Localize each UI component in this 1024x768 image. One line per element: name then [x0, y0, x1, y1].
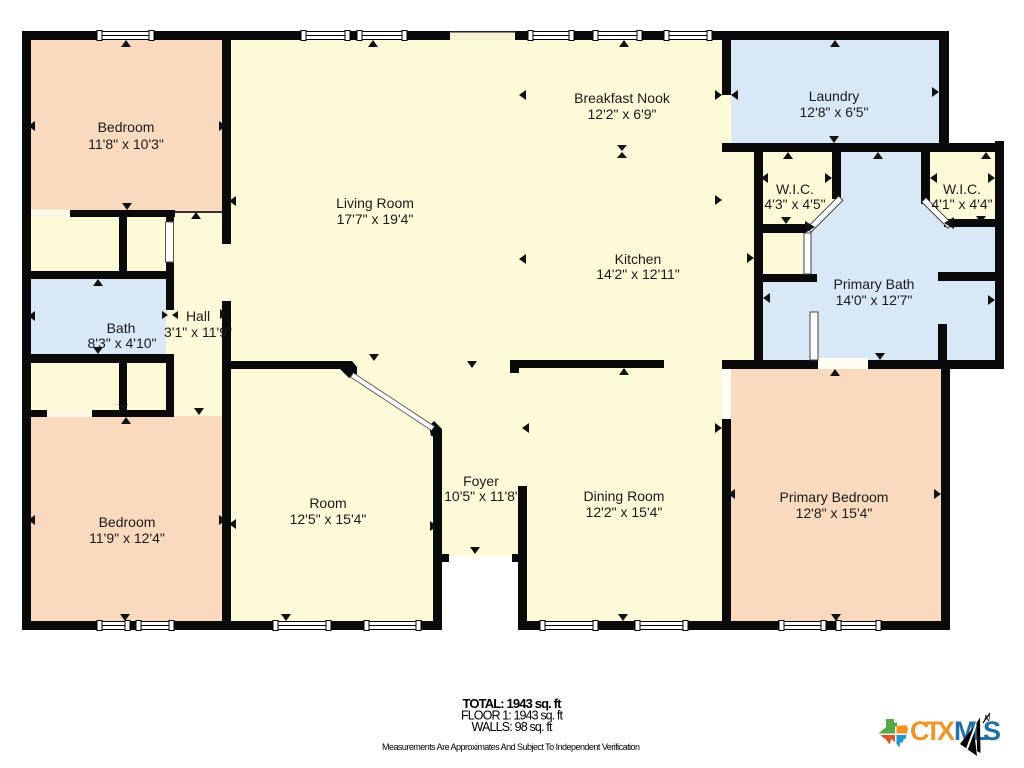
- svg-text:12'8" x 15'4": 12'8" x 15'4": [796, 505, 873, 521]
- svg-text:W.I.C.: W.I.C.: [943, 181, 981, 197]
- svg-text:Kitchen: Kitchen: [615, 251, 662, 267]
- svg-text:12'5" x 15'4": 12'5" x 15'4": [290, 511, 367, 527]
- svg-text:11'8" x 10'3": 11'8" x 10'3": [88, 136, 164, 152]
- svg-text:11'9" x 12'4": 11'9" x 12'4": [89, 530, 165, 546]
- svg-text:Foyer: Foyer: [463, 473, 499, 489]
- svg-text:W.I.C.: W.I.C.: [776, 181, 814, 197]
- svg-text:Primary Bedroom: Primary Bedroom: [780, 489, 889, 505]
- svg-text:N: N: [984, 713, 991, 723]
- svg-text:WALLS: 98 sq. ft: WALLS: 98 sq. ft: [472, 720, 554, 734]
- svg-text:14'2" x 12'11": 14'2" x 12'11": [596, 266, 680, 282]
- svg-text:14'0" x 12'7": 14'0" x 12'7": [836, 292, 913, 308]
- svg-text:3'1" x 11'9": 3'1" x 11'9": [164, 324, 232, 340]
- svg-text:Dining Room: Dining Room: [584, 488, 665, 504]
- svg-text:Breakfast Nook: Breakfast Nook: [574, 90, 671, 106]
- svg-text:Measurements Are Approximates: Measurements Are Approximates And Subjec…: [382, 742, 640, 752]
- svg-text:Living Room: Living Room: [336, 195, 414, 211]
- svg-text:17'7" x 19'4": 17'7" x 19'4": [337, 211, 414, 227]
- svg-text:10'5" x 11'8": 10'5" x 11'8": [444, 488, 520, 504]
- svg-text:CTX: CTX: [910, 716, 955, 746]
- svg-text:Bedroom: Bedroom: [98, 119, 155, 135]
- svg-text:4'1" x 4'4": 4'1" x 4'4": [931, 196, 992, 212]
- svg-text:Primary Bath: Primary Bath: [834, 276, 915, 292]
- svg-text:4'3" x 4'5": 4'3" x 4'5": [764, 196, 825, 212]
- svg-text:12'2" x 6'9": 12'2" x 6'9": [588, 106, 657, 122]
- svg-text:12'8" x 6'5": 12'8" x 6'5": [800, 104, 869, 120]
- svg-text:Hall: Hall: [186, 308, 210, 324]
- svg-text:12'2" x 15'4": 12'2" x 15'4": [586, 504, 663, 520]
- svg-text:Bedroom: Bedroom: [99, 514, 156, 530]
- svg-text:Laundry: Laundry: [809, 88, 860, 104]
- svg-text:Room: Room: [309, 495, 346, 511]
- svg-text:8'3" x 4'10": 8'3" x 4'10": [88, 335, 157, 351]
- svg-text:Bath: Bath: [107, 320, 136, 336]
